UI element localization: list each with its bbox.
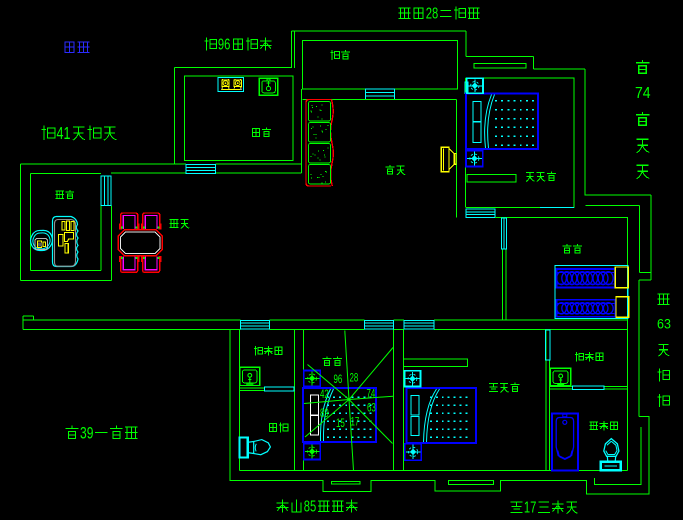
svg-text:39: 39 <box>80 425 93 443</box>
svg-text:63: 63 <box>367 401 376 415</box>
svg-text:42: 42 <box>320 387 329 401</box>
svg-text:96: 96 <box>334 372 343 386</box>
svg-text:74: 74 <box>367 387 376 401</box>
svg-text:89: 89 <box>320 406 329 420</box>
svg-text:28: 28 <box>350 371 359 385</box>
svg-text:17: 17 <box>351 415 360 429</box>
svg-text:74: 74 <box>635 85 651 102</box>
svg-text:41: 41 <box>57 124 71 143</box>
svg-text:63: 63 <box>657 317 671 332</box>
svg-text:15: 15 <box>336 416 345 430</box>
svg-text:17: 17 <box>524 500 537 517</box>
svg-text:85: 85 <box>304 499 317 516</box>
svg-text:28: 28 <box>426 6 439 23</box>
svg-text:96: 96 <box>218 37 231 54</box>
